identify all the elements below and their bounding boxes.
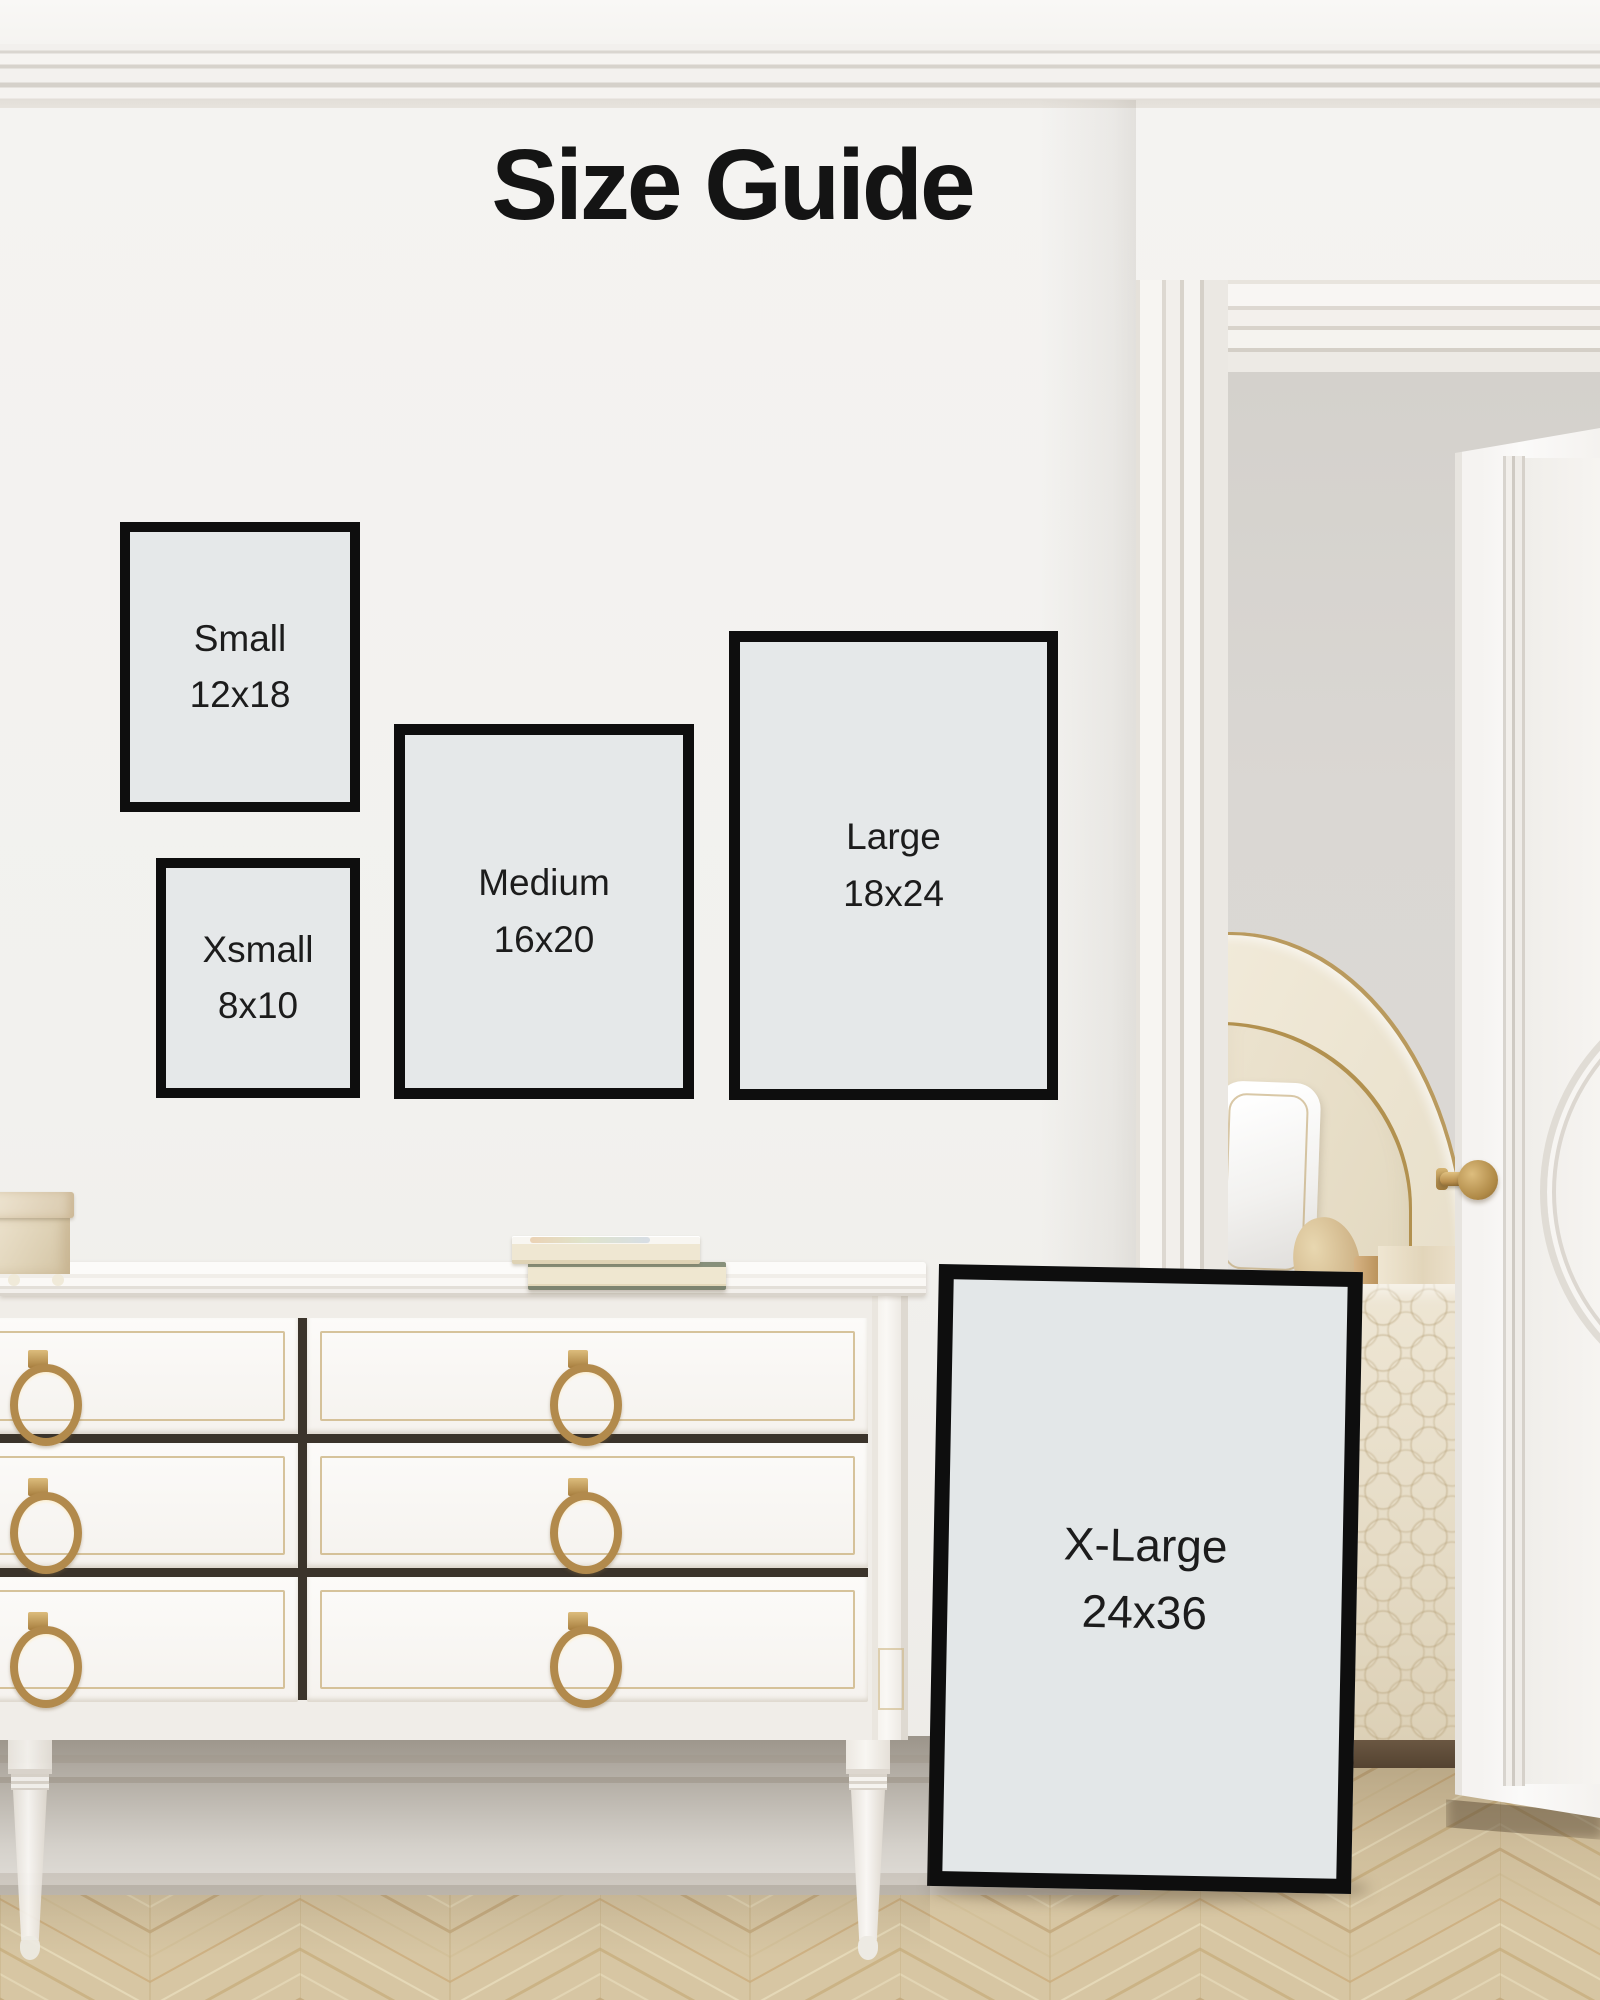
size-dimensions: 24x36 xyxy=(1081,1583,1207,1643)
size-dimensions: 18x24 xyxy=(843,871,944,917)
book xyxy=(528,1262,726,1290)
size-frame-large: Large 18x24 xyxy=(729,631,1058,1100)
door-panel-molding xyxy=(1503,456,1525,1786)
ring-pull xyxy=(550,1364,622,1446)
page-title: Size Guide xyxy=(352,128,1112,243)
drawer-gap xyxy=(0,1568,868,1577)
size-frame-xlarge: X-Large 24x36 xyxy=(927,1264,1363,1894)
ring-pull xyxy=(550,1492,622,1574)
dresser-leg xyxy=(846,1740,890,1774)
marble-box-foot xyxy=(52,1274,64,1286)
size-label: Xsmall xyxy=(202,927,313,973)
size-frame-xsmall: Xsmall 8x10 xyxy=(156,858,360,1098)
size-label: X-Large xyxy=(1063,1515,1228,1576)
ring-pull xyxy=(550,1626,622,1708)
dresser-leg-foot xyxy=(858,1936,878,1960)
dresser-shadow xyxy=(0,1736,930,1956)
drawer-gap xyxy=(0,1434,868,1443)
size-label: Small xyxy=(194,616,287,662)
ring-pull xyxy=(10,1364,82,1446)
marble-box xyxy=(0,1218,70,1274)
marble-box-foot xyxy=(8,1274,20,1286)
ring-pull xyxy=(10,1626,82,1708)
size-frame-small: Small 12x18 xyxy=(120,522,360,812)
book xyxy=(512,1236,700,1264)
size-frame-medium: Medium 16x20 xyxy=(394,724,694,1099)
size-label: Medium xyxy=(478,860,610,906)
size-dimensions: 12x18 xyxy=(190,672,291,718)
crown-molding xyxy=(0,44,1600,108)
dresser-post-detail xyxy=(878,1648,904,1710)
ring-pull xyxy=(10,1492,82,1574)
door-handle-rosette xyxy=(1458,1160,1498,1200)
size-dimensions: 8x10 xyxy=(218,983,298,1029)
ceiling xyxy=(0,0,1600,44)
dresser-top xyxy=(0,1262,926,1296)
dresser-leg xyxy=(11,1774,49,1790)
dresser-leg-foot xyxy=(20,1936,40,1960)
dresser-leg xyxy=(849,1774,887,1790)
size-guide-mockup: Size Guide Small 12x18 Xsmall 8x10 Mediu… xyxy=(0,0,1600,2000)
drawer-gap xyxy=(298,1318,307,1700)
size-dimensions: 16x20 xyxy=(494,917,595,963)
size-label: Large xyxy=(846,814,941,860)
marble-box-lid xyxy=(0,1192,74,1218)
open-door xyxy=(1455,428,1600,1818)
dresser-leg xyxy=(8,1740,52,1774)
